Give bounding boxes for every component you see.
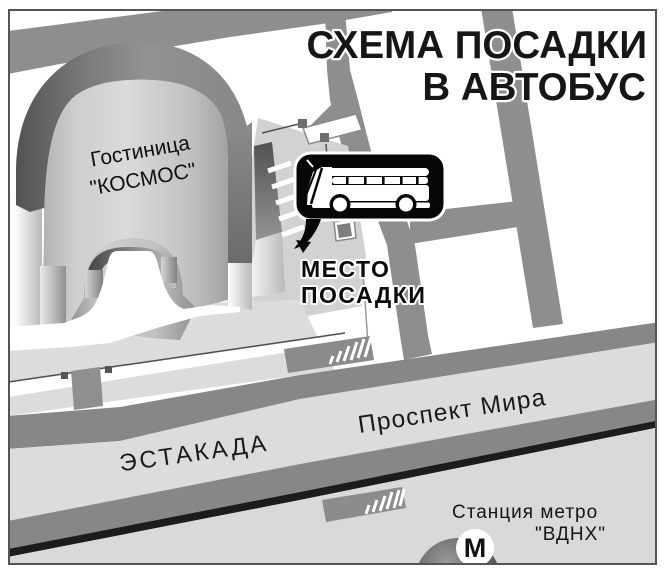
svg-text:Станция метро: Станция метро <box>452 502 598 523</box>
svg-text:В АВТОБУС: В АВТОБУС <box>422 66 646 109</box>
svg-text:МЕСТО: МЕСТО <box>301 256 390 282</box>
svg-text:М: М <box>464 533 487 563</box>
svg-text:ПОСАДКИ: ПОСАДКИ <box>301 282 426 308</box>
svg-text:СХЕМА ПОСАДКИ: СХЕМА ПОСАДКИ <box>306 24 647 67</box>
svg-text:"ВДНХ": "ВДНХ" <box>535 524 606 545</box>
